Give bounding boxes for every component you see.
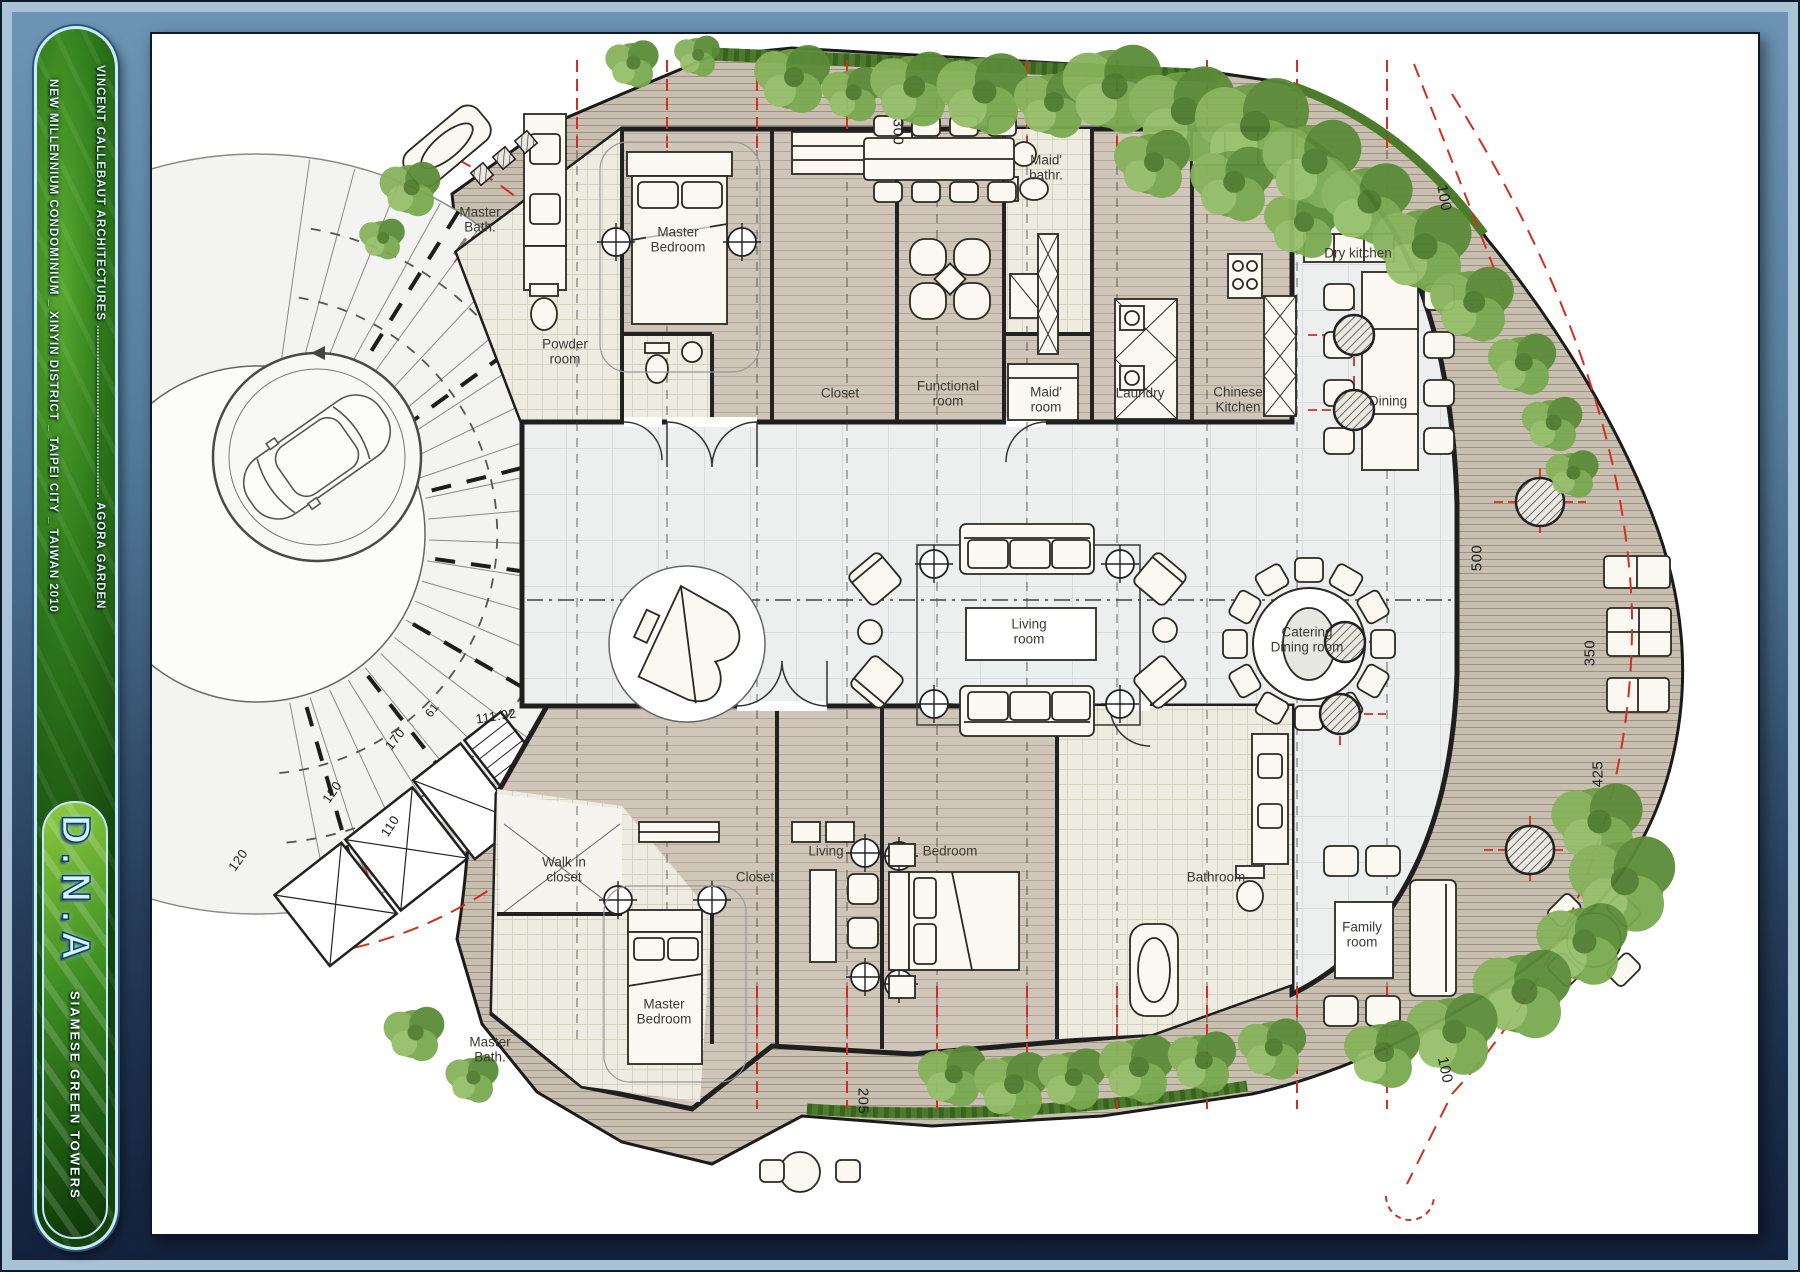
firm-name: VINCENT CALLEBAUT ARCHITECTURES [94,65,106,321]
dna-logo-capsule: D.N.A SIAMESE GREEN TOWERS [42,801,108,1239]
sidebar: VINCENT CALLEBAUT ARCHITECTURES ........… [34,26,118,1250]
project-name: AGORA GARDEN [94,502,106,609]
dotted-rule: ........................................… [94,325,106,498]
dna-logo: D.N.A [53,815,98,969]
drawing-sheet [150,32,1760,1236]
presentation-board: VINCENT CALLEBAUT ARCHITECTURES ........… [0,0,1800,1272]
floor-plan [152,34,1758,1234]
sidebar-subtitle: NEW MILLENNIUM CONDOMINIUM _ XINYIN DIST… [47,79,59,613]
dna-tagline: SIAMESE GREEN TOWERS [68,991,83,1200]
sidebar-title: VINCENT CALLEBAUT ARCHITECTURES ........… [94,65,106,609]
